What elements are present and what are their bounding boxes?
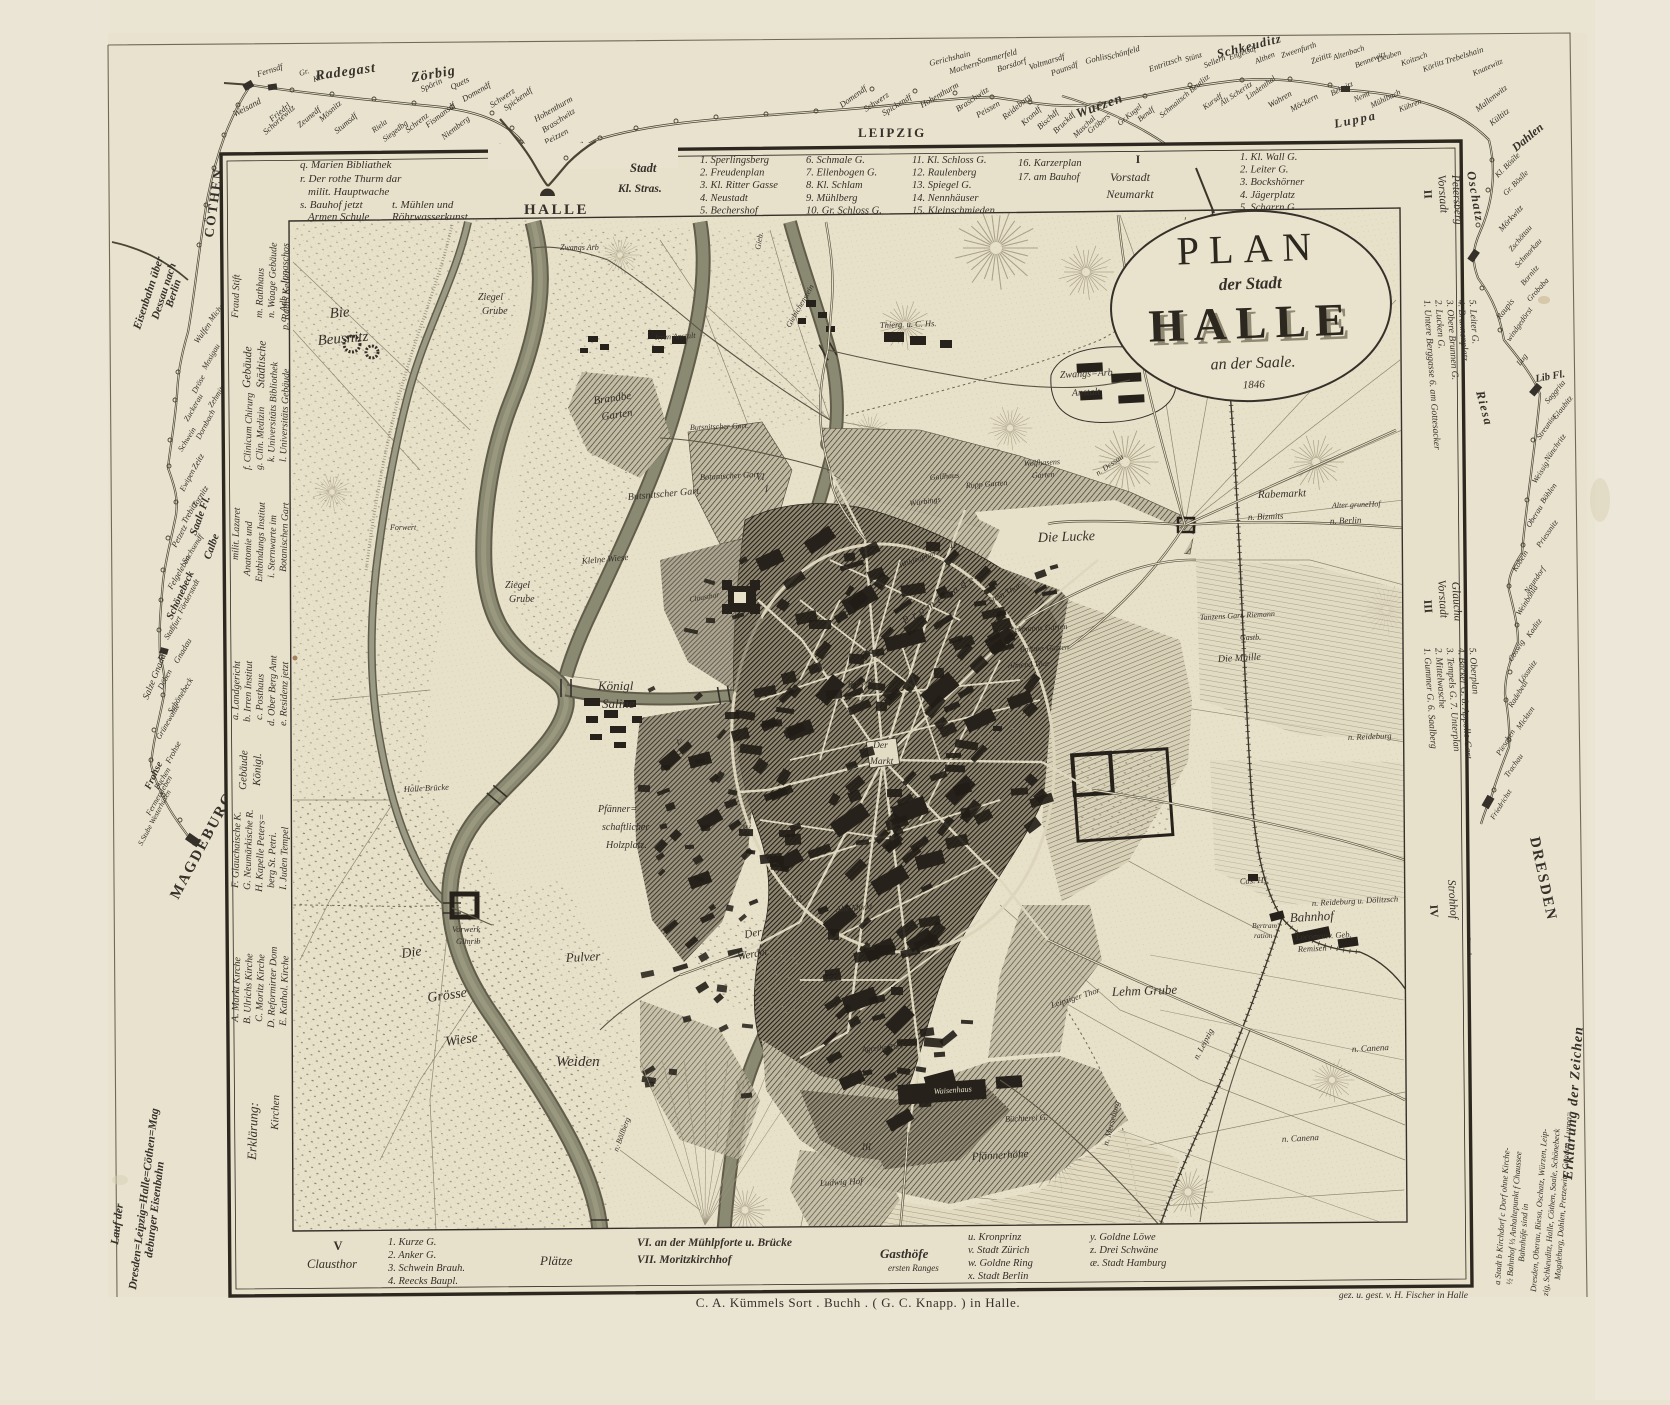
svg-text:Gimrib: Gimrib xyxy=(456,936,481,946)
svg-text:HALLE: HALLE xyxy=(1148,293,1356,351)
svg-text:17. am Bauhof: 17. am Bauhof xyxy=(1018,172,1082,183)
svg-text:Pfänner=: Pfänner= xyxy=(597,804,637,815)
svg-text:V: V xyxy=(333,1239,342,1253)
svg-text:Vorwerk: Vorwerk xyxy=(452,924,481,934)
svg-text:Anstalt: Anstalt xyxy=(1071,387,1101,400)
svg-text:b. Irren Institut: b. Irren Institut xyxy=(242,661,255,723)
svg-text:milit. Hauptwache: milit. Hauptwache xyxy=(308,186,389,198)
svg-text:n. Canena: n. Canena xyxy=(1352,1042,1390,1054)
svg-text:milit. Lazaret: milit. Lazaret xyxy=(230,507,243,560)
svg-text:7. Ellenbogen G.: 7. Ellenbogen G. xyxy=(806,168,877,179)
svg-text:c. Posthaus: c. Posthaus xyxy=(254,674,267,721)
svg-text:Bahnhof: Bahnhof xyxy=(1289,908,1336,925)
svg-text:Stadt: Stadt xyxy=(630,161,657,175)
svg-text:VII. Moritzkirchhof: VII. Moritzkirchhof xyxy=(637,1254,733,1266)
svg-text:Lehm Grube: Lehm Grube xyxy=(1111,982,1178,999)
svg-text:Holzplatz.: Holzplatz. xyxy=(605,840,647,851)
svg-text:z. Drei Schwäne: z. Drei Schwäne xyxy=(1089,1245,1158,1256)
svg-text:n. Reideburg: n. Reideburg xyxy=(1348,730,1392,742)
svg-text:Grube: Grube xyxy=(482,306,508,317)
svg-text:Ziegel: Ziegel xyxy=(505,580,530,591)
svg-text:n. Bizmits: n. Bizmits xyxy=(1248,511,1284,522)
svg-text:VI. an der Mühlpforte u. Brück: VI. an der Mühlpforte u. Brücke xyxy=(637,1237,792,1249)
svg-text:t. Mühlen und: t. Mühlen und xyxy=(392,199,454,211)
svg-text:Königl: Königl xyxy=(597,678,634,693)
svg-text:6. Schmale G.: 6. Schmale G. xyxy=(806,155,865,166)
svg-text:an der Saale.: an der Saale. xyxy=(1210,353,1295,373)
svg-text:11. Kl. Schloss G.: 11. Kl. Schloss G. xyxy=(912,155,986,166)
svg-text:e. Residenz jetzt: e. Residenz jetzt xyxy=(278,661,291,726)
svg-text:VII: VII xyxy=(790,894,802,904)
svg-text:HALLE: HALLE xyxy=(524,202,589,218)
svg-text:IV: IV xyxy=(741,824,752,834)
svg-text:VI: VI xyxy=(756,472,765,482)
svg-text:berg St. Petri.: berg St. Petri. xyxy=(266,832,279,888)
svg-text:II: II xyxy=(1421,189,1434,199)
svg-text:Zwangs Arb: Zwangs Arb xyxy=(560,243,599,252)
svg-text:1. Kurze G.: 1. Kurze G. xyxy=(388,1237,436,1248)
svg-text:9. Mühlberg: 9. Mühlberg xyxy=(806,193,858,204)
svg-text:C. A. Kümmels Sort . Buchh .: C. A. Kümmels Sort . Buchh . ( G. C. Kna… xyxy=(696,1295,1020,1310)
svg-text:der Stadt: der Stadt xyxy=(1218,273,1283,294)
svg-text:3. Kl. Ritter Gasse: 3. Kl. Ritter Gasse xyxy=(699,180,778,191)
svg-text:Kirchen: Kirchen xyxy=(269,1094,282,1131)
svg-text:Cas. Hs.: Cas. Hs. xyxy=(1240,874,1270,886)
svg-text:1. Kl. Wall G.: 1. Kl. Wall G. xyxy=(1240,152,1297,163)
svg-text:PLAN: PLAN xyxy=(1176,224,1322,274)
svg-text:16. Karzerplan: 16. Karzerplan xyxy=(1018,158,1082,169)
svg-text:Die Lucke: Die Lucke xyxy=(1037,529,1096,546)
svg-text:Pulver: Pulver xyxy=(564,948,601,965)
svg-text:Gastb.: Gastb. xyxy=(1240,633,1261,642)
svg-text:Gebäude: Gebäude xyxy=(237,750,250,790)
svg-text:4. Neustadt: 4. Neustadt xyxy=(700,193,749,204)
svg-text:I: I xyxy=(1136,152,1141,166)
svg-text:v. Stadt Zürich: v. Stadt Zürich xyxy=(968,1245,1029,1256)
svg-text:3. Schwein Brauh.: 3. Schwein Brauh. xyxy=(387,1263,465,1274)
svg-text:schaftlicher: schaftlicher xyxy=(602,822,649,833)
svg-text:2. Freudenplan: 2. Freudenplan xyxy=(700,168,764,179)
svg-text:æ. Stadt Hamburg: æ. Stadt Hamburg xyxy=(1090,1258,1166,1269)
svg-text:Remisen: Remisen xyxy=(1297,943,1327,955)
svg-text:Markt: Markt xyxy=(869,757,894,767)
svg-text:3. Bockshörner: 3. Bockshörner xyxy=(1239,177,1305,188)
svg-text:Alter gruneHof: Alter gruneHof xyxy=(1331,499,1383,510)
svg-text:ration: ration xyxy=(1254,931,1273,940)
svg-text:gez. u. gest. v. H. Fischer in: gez. u. gest. v. H. Fischer in Halle xyxy=(1339,1291,1468,1301)
svg-text:Ziegel: Ziegel xyxy=(478,292,503,303)
svg-text:8. Kl. Schlam: 8. Kl. Schlam xyxy=(806,180,863,191)
svg-text:a. Landgericht: a. Landgericht xyxy=(230,661,243,720)
svg-text:Thierg. u. C. Hs.: Thierg. u. C. Hs. xyxy=(880,318,937,330)
svg-text:w. Goldne Ring: w. Goldne Ring xyxy=(968,1258,1033,1269)
svg-text:Saline: Saline xyxy=(602,696,635,711)
svg-text:n. Berlin: n. Berlin xyxy=(1330,515,1362,526)
svg-text:LEIPZIG: LEIPZIG xyxy=(858,125,926,140)
svg-text:I. Juden Tempel: I. Juden Tempel xyxy=(278,826,291,891)
svg-text:III: III xyxy=(861,1142,872,1152)
svg-text:II: II xyxy=(949,540,957,550)
svg-text:Königl.: Königl. xyxy=(251,753,264,787)
svg-text:y. Goldne Löwe: y. Goldne Löwe xyxy=(1089,1232,1156,1243)
svg-text:Rabemarkt: Rabemarkt xyxy=(1257,487,1308,501)
svg-text:2. Leiter G.: 2. Leiter G. xyxy=(1240,165,1288,176)
svg-text:1. Sperlingsberg: 1. Sperlingsberg xyxy=(700,155,769,166)
svg-text:Neumarkt: Neumarkt xyxy=(1105,187,1154,201)
svg-text:Weiden: Weiden xyxy=(556,1054,600,1070)
svg-text:1846: 1846 xyxy=(1243,379,1266,392)
svg-text:Der: Der xyxy=(872,741,888,751)
svg-text:Erklärung:: Erklärung: xyxy=(244,1102,261,1161)
svg-text:IV: IV xyxy=(1427,904,1440,918)
svg-text:ersten Ranges: ersten Ranges xyxy=(888,1263,939,1273)
svg-text:Plätze: Plätze xyxy=(539,1253,573,1268)
svg-text:5. Bechershof: 5. Bechershof xyxy=(700,205,760,216)
svg-text:2. Anker G.: 2. Anker G. xyxy=(388,1250,436,1261)
svg-text:Grube: Grube xyxy=(509,594,535,605)
svg-text:n. Canena: n. Canena xyxy=(1282,1132,1320,1144)
svg-text:Garten: Garten xyxy=(1032,470,1055,480)
svg-text:Fraud Stift: Fraud Stift xyxy=(230,274,243,319)
svg-text:12. Raulenberg: 12. Raulenberg xyxy=(912,168,976,179)
svg-text:Die: Die xyxy=(399,944,422,962)
svg-text:4. Jägerplatz: 4. Jägerplatz xyxy=(1240,190,1295,201)
svg-text:Anatomie und: Anatomie und xyxy=(242,521,255,577)
svg-text:m. Rathhaus: m. Rathhaus xyxy=(254,268,267,318)
svg-text:s. Bauhof jetzt: s. Bauhof jetzt xyxy=(300,199,364,211)
svg-text:Die Maille: Die Maille xyxy=(1217,652,1262,665)
svg-text:Gebäude: Gebäude xyxy=(241,346,254,388)
svg-text:4. Reecks Baupl.: 4. Reecks Baupl. xyxy=(388,1276,458,1287)
svg-text:Städtische: Städtische xyxy=(255,340,269,388)
svg-text:q. Marien Bibliathek: q. Marien Bibliathek xyxy=(300,159,392,171)
svg-text:Clausthor: Clausthor xyxy=(307,1257,357,1271)
svg-text:14. Nennhäuser: 14. Nennhäuser xyxy=(912,193,979,204)
svg-text:u. Kronprinz: u. Kronprinz xyxy=(968,1232,1021,1243)
svg-text:Wolfhasens: Wolfhasens xyxy=(1024,457,1061,468)
svg-text:r. Der rothe Thurm dar: r. Der rothe Thurm dar xyxy=(300,173,402,185)
svg-text:Bie: Bie xyxy=(329,304,351,322)
svg-text:Bertram: Bertram xyxy=(1252,921,1278,930)
svg-text:x. Stadt Berlin: x. Stadt Berlin xyxy=(967,1271,1028,1282)
svg-text:III: III xyxy=(1421,599,1434,614)
svg-text:Vorstadt: Vorstadt xyxy=(1110,170,1151,184)
svg-text:Gasthöfe: Gasthöfe xyxy=(880,1246,929,1261)
svg-text:A. Markt Kirche: A. Markt Kirche xyxy=(230,956,243,1023)
svg-text:Forwert: Forwert xyxy=(389,523,417,532)
svg-text:Kl. Stras.: Kl. Stras. xyxy=(617,183,662,195)
svg-text:13. Spiegel G.: 13. Spiegel G. xyxy=(912,180,972,191)
